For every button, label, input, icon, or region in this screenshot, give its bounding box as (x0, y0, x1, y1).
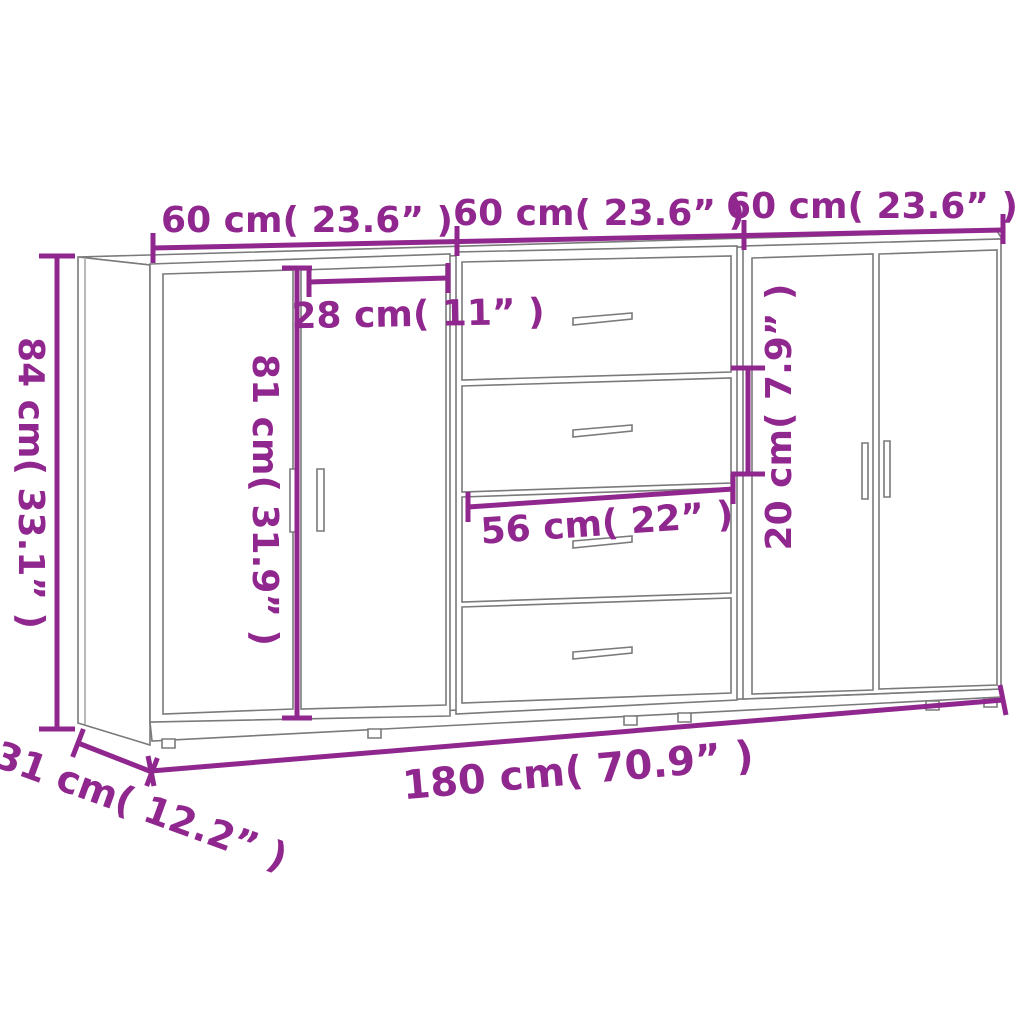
dim-label-overall-height: 84 cm( 33.1” ) (12, 337, 48, 629)
foot (624, 716, 637, 725)
dim-label-unit-width-right: 60 cm( 23.6” ) (726, 189, 1018, 225)
furniture-dimension-diagram: 60 cm( 23.6” ) 60 cm( 23.6” ) 60 cm( 23.… (0, 0, 1024, 1024)
dim-label-door-height: 81 cm( 31.9” ) (246, 354, 282, 646)
foot (368, 729, 381, 738)
dim-label-unit-width-middle: 60 cm( 23.6” ) (453, 196, 745, 232)
right-cabinet-door-right (879, 250, 997, 689)
door-handle (317, 469, 324, 531)
door-handle (884, 441, 890, 497)
dim-label-door-width: 28 cm( 11” ) (291, 295, 545, 335)
dim-label-drawer-height: 20 cm( 7.9” ) (762, 284, 798, 551)
dim-label-unit-width-left: 60 cm( 23.6” ) (161, 203, 453, 239)
foot (162, 739, 175, 748)
door-handle (862, 443, 868, 499)
foot (678, 713, 691, 722)
left-side-panel (78, 257, 150, 745)
